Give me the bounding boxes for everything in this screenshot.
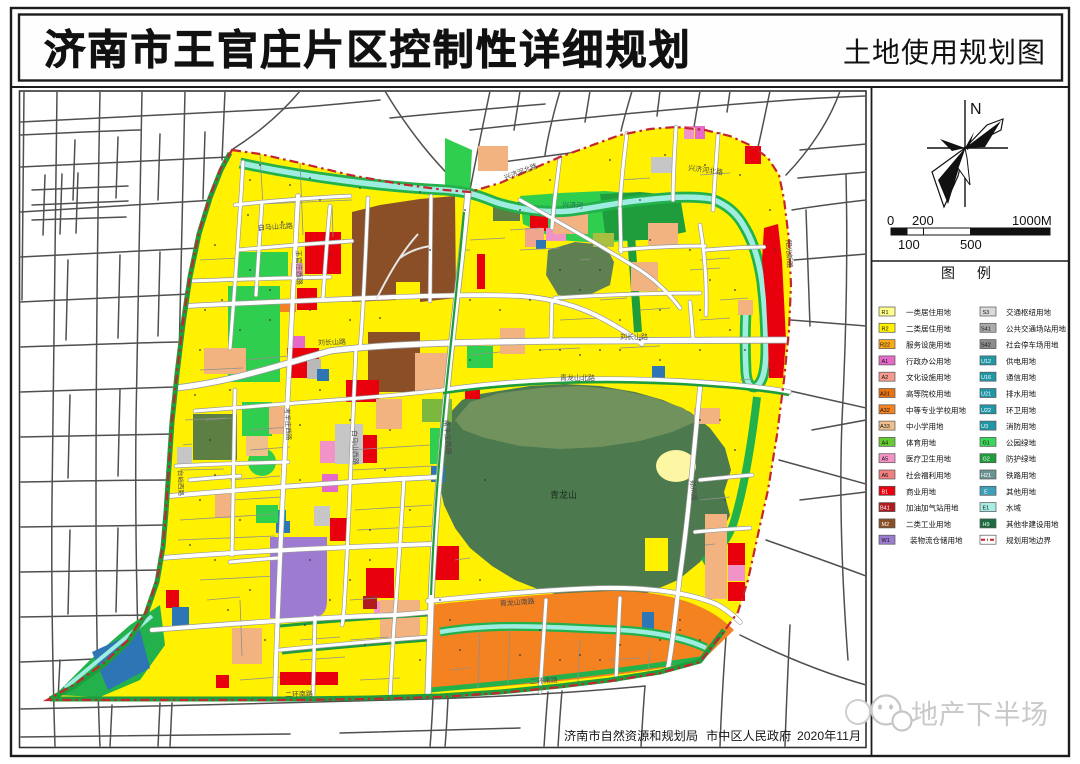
svg-text:R1: R1	[882, 310, 889, 316]
svg-text:0: 0	[887, 213, 894, 228]
svg-text:济南市王官庄片区控制性详细规划: 济南市王官庄片区控制性详细规划	[44, 27, 692, 73]
svg-text:济南市自然资源和规划局: 济南市自然资源和规划局	[564, 728, 698, 743]
svg-text:200: 200	[912, 213, 934, 228]
svg-text:规划用地边界: 规划用地边界	[1006, 535, 1051, 545]
svg-text:1000M: 1000M	[1012, 213, 1052, 228]
svg-text:100: 100	[898, 237, 920, 252]
svg-text:A33: A33	[880, 424, 890, 430]
svg-text:A31: A31	[880, 392, 890, 398]
svg-text:S3: S3	[983, 310, 990, 316]
svg-text:铁路用地: 铁路用地	[1006, 470, 1036, 480]
svg-text:图 例: 图 例	[941, 265, 1000, 281]
svg-text:公共交通场站用地: 公共交通场站用地	[1006, 323, 1066, 333]
svg-text:供电用地: 供电用地	[1006, 356, 1036, 366]
svg-text:排水用地: 排水用地	[1006, 389, 1036, 399]
svg-text:社会福利用地: 社会福利用地	[906, 470, 951, 480]
svg-text:W1: W1	[882, 538, 890, 544]
svg-text:M2: M2	[882, 522, 890, 528]
svg-text:其他非建设用地: 其他非建设用地	[1006, 519, 1059, 529]
svg-text:文化设施用地: 文化设施用地	[906, 372, 951, 382]
svg-text:U3: U3	[981, 424, 988, 430]
svg-text:加油加气站用地: 加油加气站用地	[906, 503, 959, 513]
svg-text:地产下半场: 地产下半场	[911, 700, 1049, 730]
svg-text:行政办公用地: 行政办公用地	[906, 356, 951, 366]
svg-text:通信用地: 通信用地	[1006, 372, 1036, 382]
svg-text:青龙山北路: 青龙山北路	[560, 373, 595, 382]
svg-text:S42: S42	[981, 343, 991, 349]
svg-text:U12: U12	[981, 359, 991, 365]
svg-text:U16: U16	[981, 375, 991, 381]
svg-text:A1: A1	[882, 359, 889, 365]
svg-text:二类工业用地: 二类工业用地	[906, 519, 951, 529]
svg-text:E: E	[984, 489, 988, 495]
svg-text:服务设施用地: 服务设施用地	[906, 340, 951, 350]
svg-text:G2: G2	[983, 457, 990, 463]
svg-text:U22: U22	[981, 408, 991, 414]
svg-text:U21: U21	[981, 392, 991, 398]
svg-text:B41: B41	[880, 506, 890, 512]
svg-text:市中区人民政府: 市中区人民政府	[706, 728, 791, 743]
svg-text:防护绿地: 防护绿地	[1006, 454, 1036, 464]
svg-text:N: N	[970, 101, 982, 118]
svg-text:公园绿地: 公园绿地	[1006, 437, 1036, 447]
svg-text:2020年11月: 2020年11月	[797, 729, 861, 743]
svg-text:中等专业学校用地: 中等专业学校用地	[906, 405, 966, 415]
svg-text:高等院校用地: 高等院校用地	[906, 389, 951, 399]
svg-text:H21: H21	[981, 473, 991, 479]
svg-text:A6: A6	[882, 473, 889, 479]
svg-text:装物流仓储用地: 装物流仓储用地	[910, 535, 963, 545]
svg-text:商业用地: 商业用地	[906, 486, 936, 496]
svg-text:500: 500	[960, 237, 982, 252]
svg-text:青龙山: 青龙山	[550, 489, 577, 500]
svg-text:中小学用地: 中小学用地	[906, 421, 944, 431]
svg-text:E1: E1	[983, 506, 990, 512]
svg-text:土地使用规划图: 土地使用规划图	[843, 37, 1046, 68]
svg-text:A2: A2	[882, 375, 889, 381]
svg-text:消防用地: 消防用地	[1006, 421, 1036, 431]
svg-text:刘长山路: 刘长山路	[620, 332, 648, 341]
svg-text:体育用地: 体育用地	[906, 437, 936, 447]
svg-text:G1: G1	[983, 440, 990, 446]
svg-text:医疗卫生用地: 医疗卫生用地	[906, 454, 951, 464]
svg-text:B1: B1	[882, 489, 889, 495]
svg-text:水域: 水域	[1006, 503, 1021, 513]
svg-text:交通枢纽用地: 交通枢纽用地	[1006, 307, 1051, 317]
svg-text:S41: S41	[981, 326, 991, 332]
svg-text:R22: R22	[880, 343, 890, 349]
svg-text:A32: A32	[880, 408, 890, 414]
svg-text:R2: R2	[882, 326, 889, 332]
svg-text:其他用地: 其他用地	[1006, 486, 1036, 496]
svg-text:一类居住用地: 一类居住用地	[906, 307, 951, 317]
svg-text:H9: H9	[983, 522, 990, 528]
svg-text:A4: A4	[882, 440, 889, 446]
svg-text:环卫用地: 环卫用地	[1006, 405, 1036, 415]
svg-text:二类居住用地: 二类居住用地	[906, 323, 951, 333]
svg-text:社会停车场用地: 社会停车场用地	[1006, 340, 1059, 350]
svg-text:A5: A5	[882, 457, 889, 463]
